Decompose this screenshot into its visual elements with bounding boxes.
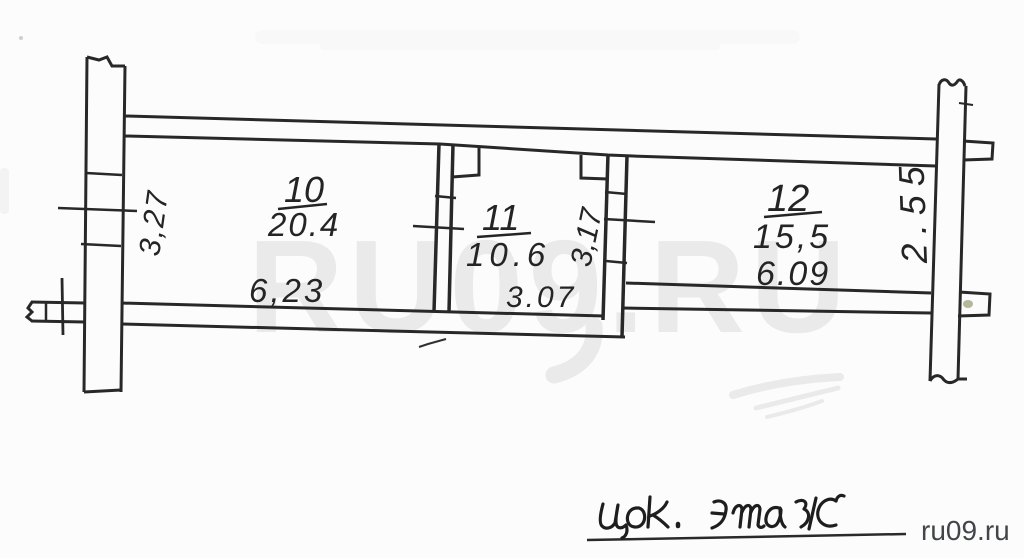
svg-text:10.6: 10.6 bbox=[466, 236, 550, 273]
svg-text:11: 11 bbox=[482, 197, 519, 238]
svg-text:20.4: 20.4 bbox=[267, 206, 340, 243]
svg-text:3.07: 3.07 bbox=[506, 281, 576, 314]
svg-text:ru09.ru: ru09.ru bbox=[921, 515, 1010, 546]
svg-text:2.55: 2.55 bbox=[890, 157, 935, 265]
svg-text:6,23: 6,23 bbox=[249, 272, 325, 309]
svg-text:15,5: 15,5 bbox=[753, 218, 831, 256]
svg-text:6.09: 6.09 bbox=[756, 255, 830, 293]
